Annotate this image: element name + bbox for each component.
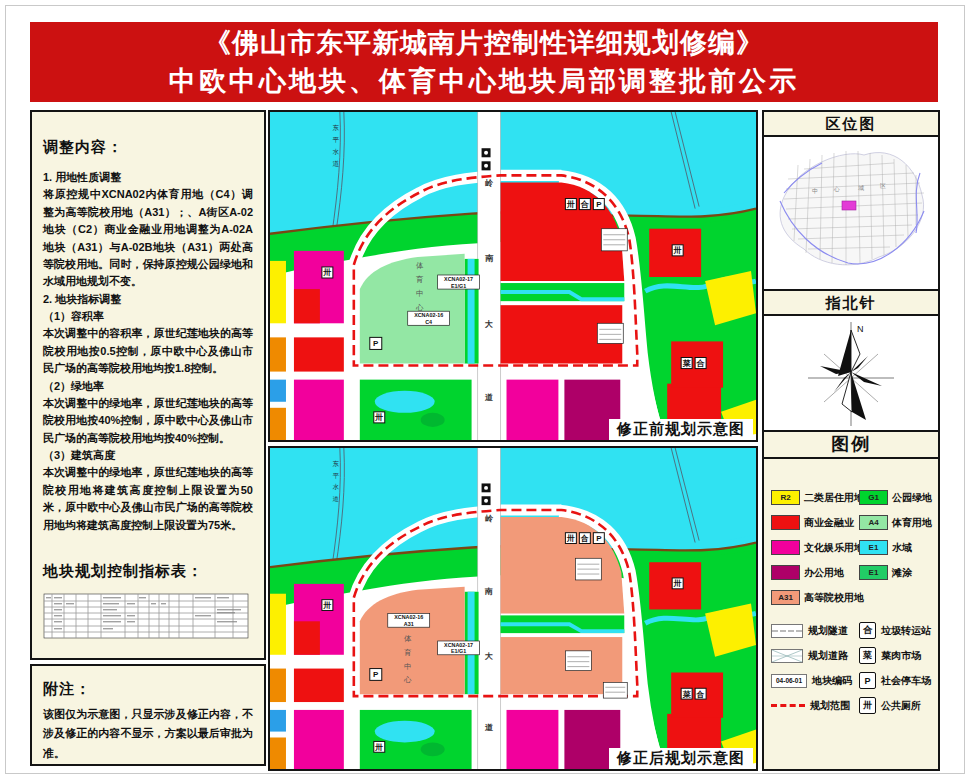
svg-text:P: P [373, 339, 379, 348]
before-map-caption: 修正前规划示意图 [609, 419, 753, 440]
legend-item-plot-code: 04-06-01 地块编码 [771, 668, 859, 693]
location-map-graphic: 中 心 城 区 [764, 137, 938, 289]
svg-text:大: 大 [485, 320, 493, 329]
legend-item-toilet: 卅 公共厕所 [859, 693, 931, 718]
legend-item: G1 公园绿地 [859, 485, 931, 510]
paragraph: （1）容积率 [43, 308, 253, 325]
legend-item-road: 规划道路 [771, 643, 859, 668]
svg-text:平: 平 [333, 136, 340, 143]
toilet-icon: 卅 [374, 741, 385, 752]
legend-item-tunnel: 规划隧道 [771, 618, 859, 643]
garbage-station-icon: 合 [579, 199, 590, 210]
boundary-symbol [771, 704, 805, 707]
svg-text:道: 道 [484, 723, 494, 732]
legend-item: 办公用地 [771, 560, 859, 585]
paragraph: 2. 地块指标调整 [43, 291, 253, 308]
legend-swatch: G1 [859, 490, 888, 505]
svg-text:XCNA02-16: XCNA02-16 [394, 614, 423, 620]
svg-text:道: 道 [333, 160, 340, 167]
road-symbol [771, 649, 803, 663]
after-plan-map: 卅 卅 合 P P 卅 卅 菜 [268, 446, 758, 771]
parking-icon: P [370, 669, 382, 681]
svg-text:中: 中 [416, 289, 423, 298]
compass-body: N [762, 314, 940, 432]
market-icon: 菜 [681, 357, 692, 368]
legend-item-parking: P 社会停车场 [859, 668, 931, 693]
svg-text:道: 道 [484, 393, 494, 402]
north-arrow-icon: N [764, 316, 938, 430]
adjustment-content-panel: 调整内容： 1. 用地性质调整 将原控规中XCNA02内体育用地（C4）调整为高… [30, 110, 266, 660]
parking-icon: P [859, 672, 876, 689]
svg-text:城: 城 [858, 185, 864, 191]
legend-item: E1 滩涂 [859, 560, 931, 585]
garbage-station-icon: 合 [579, 533, 590, 544]
plot-code-box: XCNA02-17 E1/G1 [438, 275, 480, 289]
svg-text:体: 体 [404, 634, 412, 643]
paragraph: 本次调整中的容积率，原世纪莲地块的高等院校用地按0.5控制，原中欧中心及佛山市民… [43, 325, 253, 377]
toilet-icon: 卅 [374, 412, 385, 423]
notes-heading: 附注： [43, 680, 253, 699]
svg-text:XCNA02-16: XCNA02-16 [414, 312, 443, 318]
plot-code-box: XCNA02-17 E1/G1 [438, 641, 480, 655]
svg-text:XCNA02-17: XCNA02-17 [444, 642, 473, 648]
svg-text:平: 平 [333, 472, 340, 479]
toilet-icon: 卅 [672, 245, 683, 256]
paragraph: 本次调整中的绿地率，原世纪莲地块的高等院校用地将建筑高度控制上限设置为50米，原… [43, 464, 253, 534]
legend-item-garbage: 合 垃圾转运站 [859, 618, 931, 643]
svg-text:水: 水 [333, 148, 340, 155]
svg-text:P: P [596, 200, 602, 209]
compass-header: 指北针 [762, 289, 940, 316]
svg-text:育: 育 [416, 275, 424, 284]
svg-text:菜: 菜 [682, 690, 691, 699]
notes-panel: 附注： 该图仅为示意图，只显示涉及修正内容，不涉及修正的内容不显示，方案以最后审… [30, 664, 266, 766]
garbage-station-icon: 合 [695, 688, 706, 699]
svg-text:卅: 卅 [322, 268, 331, 277]
svg-text:育: 育 [404, 648, 412, 657]
legend-body: R2 二类居住用地 商业金融业 文化娱乐用地 办公用地 A31 高等院校用地 [762, 457, 940, 771]
svg-text:E1/G1: E1/G1 [451, 648, 466, 654]
legend-swatch: E1 [859, 565, 888, 580]
svg-text:A31: A31 [404, 621, 414, 627]
legend-header: 图例 [762, 430, 940, 459]
svg-text:区: 区 [880, 182, 886, 189]
title-line2: 中欧中心地块、体育中心地块局部调整批前公示 [30, 64, 938, 98]
legend-swatch [771, 515, 800, 530]
legend-item: A31 高等院校用地 [771, 585, 859, 610]
paragraph: （2）绿地率 [43, 378, 253, 395]
adjustment-heading: 调整内容： [43, 138, 253, 157]
paragraph: （3）建筑高度 [43, 447, 253, 464]
svg-text:南: 南 [484, 587, 493, 596]
parking-icon: P [593, 199, 604, 210]
legend-swatch: A31 [771, 590, 800, 605]
svg-text:P: P [596, 534, 602, 543]
toilet-icon: 卅 [565, 199, 576, 210]
before-map-graphic: 卅 卅 合 P P 卅 卅 菜 [270, 112, 756, 440]
svg-text:中: 中 [404, 662, 411, 671]
west-blocks [270, 251, 344, 440]
west-blocks [270, 584, 344, 769]
svg-text:卅: 卅 [374, 743, 383, 752]
title-banner: 《佛山市东平新城南片控制性详细规划修编》 中欧中心地块、体育中心地块局部调整批前… [30, 22, 938, 102]
tunnel-symbol [771, 624, 803, 638]
after-map-graphic: 卅 卅 合 P P 卅 卅 菜 [270, 448, 756, 769]
market-icon: 菜 [681, 688, 692, 699]
title-line1: 《佛山市东平新城南片控制性详细规划修编》 [30, 22, 938, 64]
svg-text:南: 南 [485, 254, 494, 263]
indicator-box [601, 229, 627, 251]
svg-text:大: 大 [485, 652, 493, 661]
svg-text:菜: 菜 [682, 359, 692, 368]
legend-item: 商业金融业 [771, 510, 859, 535]
svg-text:P: P [373, 670, 379, 679]
legend-swatch [771, 540, 800, 555]
svg-text:卅: 卅 [673, 579, 682, 588]
svg-text:心: 心 [415, 303, 424, 312]
indicator-box [565, 651, 591, 671]
legend-swatch [771, 565, 800, 580]
indicator-mini-table [43, 589, 253, 643]
plot-code-box: XCNA02-16 C4 [408, 311, 450, 325]
before-plan-map: 卅 卅 合 P P 卅 卅 菜 [268, 110, 758, 442]
paragraph: 1. 用地性质调整 [43, 169, 253, 186]
legend-item: A4 体育用地 [859, 510, 931, 535]
legend-item: R2 二类居住用地 [771, 485, 859, 510]
svg-text:岭: 岭 [485, 179, 494, 188]
plot-code-symbol: 04-06-01 [771, 674, 807, 688]
project-site-marker [842, 201, 856, 210]
svg-text:卅: 卅 [673, 246, 682, 255]
svg-text:中: 中 [812, 188, 818, 194]
location-map-header: 区位图 [762, 110, 940, 137]
toilet-icon: 卅 [859, 697, 876, 714]
svg-text:东: 东 [333, 460, 340, 467]
paragraph: 本次调整中的绿地率，原世纪莲地块的高等院校用地按40%控制，原中欧中心及佛山市民… [43, 395, 253, 447]
indicator-box [603, 682, 627, 698]
svg-text:卅: 卅 [374, 413, 383, 422]
svg-text:水: 水 [333, 483, 340, 490]
toilet-icon: 卅 [672, 578, 683, 589]
legend-item-boundary: 规划范围 [771, 693, 859, 718]
indicator-box [597, 323, 623, 343]
legend-swatch: R2 [771, 490, 800, 505]
svg-text:卅: 卅 [322, 601, 331, 610]
toilet-icon: 卅 [565, 533, 576, 544]
notes-body: 该图仅为示意图，只显示涉及修正内容，不涉及修正的内容不显示，方案以最后审批为准。 [43, 705, 253, 763]
svg-text:道: 道 [333, 495, 339, 502]
svg-text:心: 心 [403, 675, 412, 684]
indicator-box [575, 558, 601, 580]
svg-text:卅: 卅 [566, 200, 575, 209]
svg-text:卅: 卅 [566, 534, 575, 543]
svg-text:心: 心 [833, 186, 840, 192]
legend-swatch: E1 [859, 540, 888, 555]
svg-text:C4: C4 [425, 319, 432, 325]
svg-text:E1/G1: E1/G1 [451, 283, 466, 289]
north-letter: N [857, 324, 864, 334]
svg-text:合: 合 [696, 690, 705, 699]
parking-icon: P [370, 337, 382, 349]
svg-text:合: 合 [580, 200, 590, 209]
svg-text:合: 合 [696, 359, 706, 368]
svg-text:XCNA02-17: XCNA02-17 [444, 276, 473, 282]
market-icon: 菜 [859, 647, 876, 664]
svg-text:东: 东 [333, 124, 340, 131]
garbage-station-icon: 合 [695, 357, 706, 368]
legend-item-market: 菜 菜肉市场 [859, 643, 931, 668]
after-map-caption: 修正后规划示意图 [609, 748, 753, 769]
legend-item: E1 水域 [859, 535, 931, 560]
legend-swatch: A4 [859, 515, 888, 530]
garbage-station-icon: 合 [859, 622, 876, 639]
indicator-table-heading: 地块规划控制指标表： [43, 562, 253, 581]
svg-text:岭: 岭 [485, 514, 494, 523]
plot-code-box: XCNA02-16 A31 [388, 613, 430, 627]
toilet-icon: 卅 [322, 267, 333, 278]
parking-icon: P [593, 533, 604, 544]
svg-text:体: 体 [416, 261, 424, 270]
legend-item: 文化娱乐用地 [771, 535, 859, 560]
paragraph: 将原控规中XCNA02内体育用地（C4）调整为高等院校用地（A31）；、A街区A… [43, 186, 253, 290]
toilet-icon: 卅 [322, 600, 333, 611]
location-map-body: 中 心 城 区 [762, 135, 940, 291]
svg-text:合: 合 [580, 534, 589, 543]
